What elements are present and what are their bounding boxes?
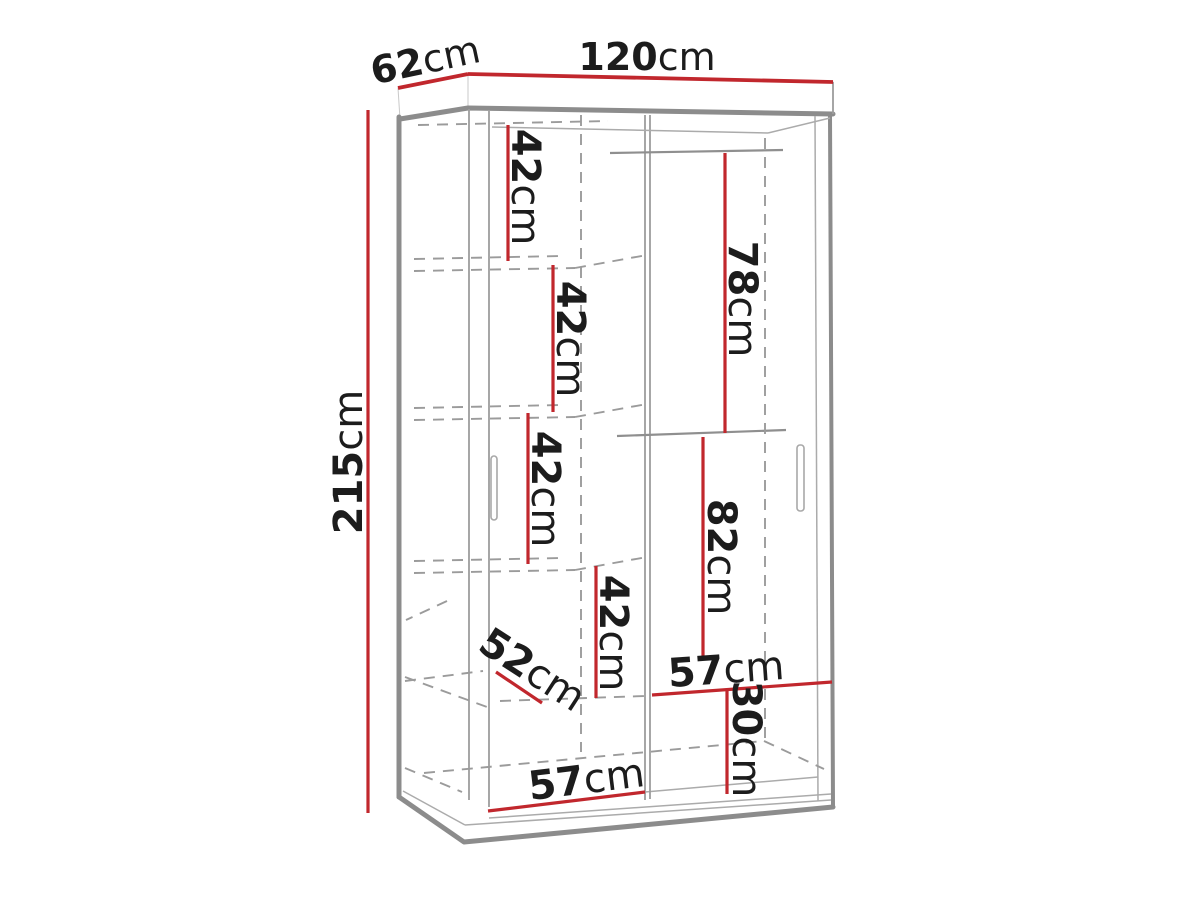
label-hanging-upper: 78cm xyxy=(719,241,765,358)
dimension-labels: 120cm 62cm 215cm 42cm 42cm 42cm 42cm 78c… xyxy=(326,27,786,810)
label-shelf-gap-2: 42cm xyxy=(547,281,593,398)
right-door-handle xyxy=(797,445,804,511)
label-shelf-gap-1: 42cm xyxy=(502,129,548,246)
label-overall-height: 215cm xyxy=(326,390,372,534)
label-bottom-compartment: 30cm xyxy=(723,681,769,798)
wardrobe-dimension-diagram: 120cm 62cm 215cm 42cm 42cm 42cm 42cm 78c… xyxy=(0,0,1200,900)
label-overall-width: 120cm xyxy=(578,35,715,79)
left-door-handle xyxy=(491,456,497,520)
label-shelf-gap-4: 42cm xyxy=(590,575,636,692)
label-hanging-lower: 82cm xyxy=(698,499,744,616)
label-shelf-gap-3: 42cm xyxy=(522,431,568,548)
diagram-canvas: 120cm 62cm 215cm 42cm 42cm 42cm 42cm 78c… xyxy=(0,0,1200,900)
label-left-width: 57cm xyxy=(526,750,647,810)
